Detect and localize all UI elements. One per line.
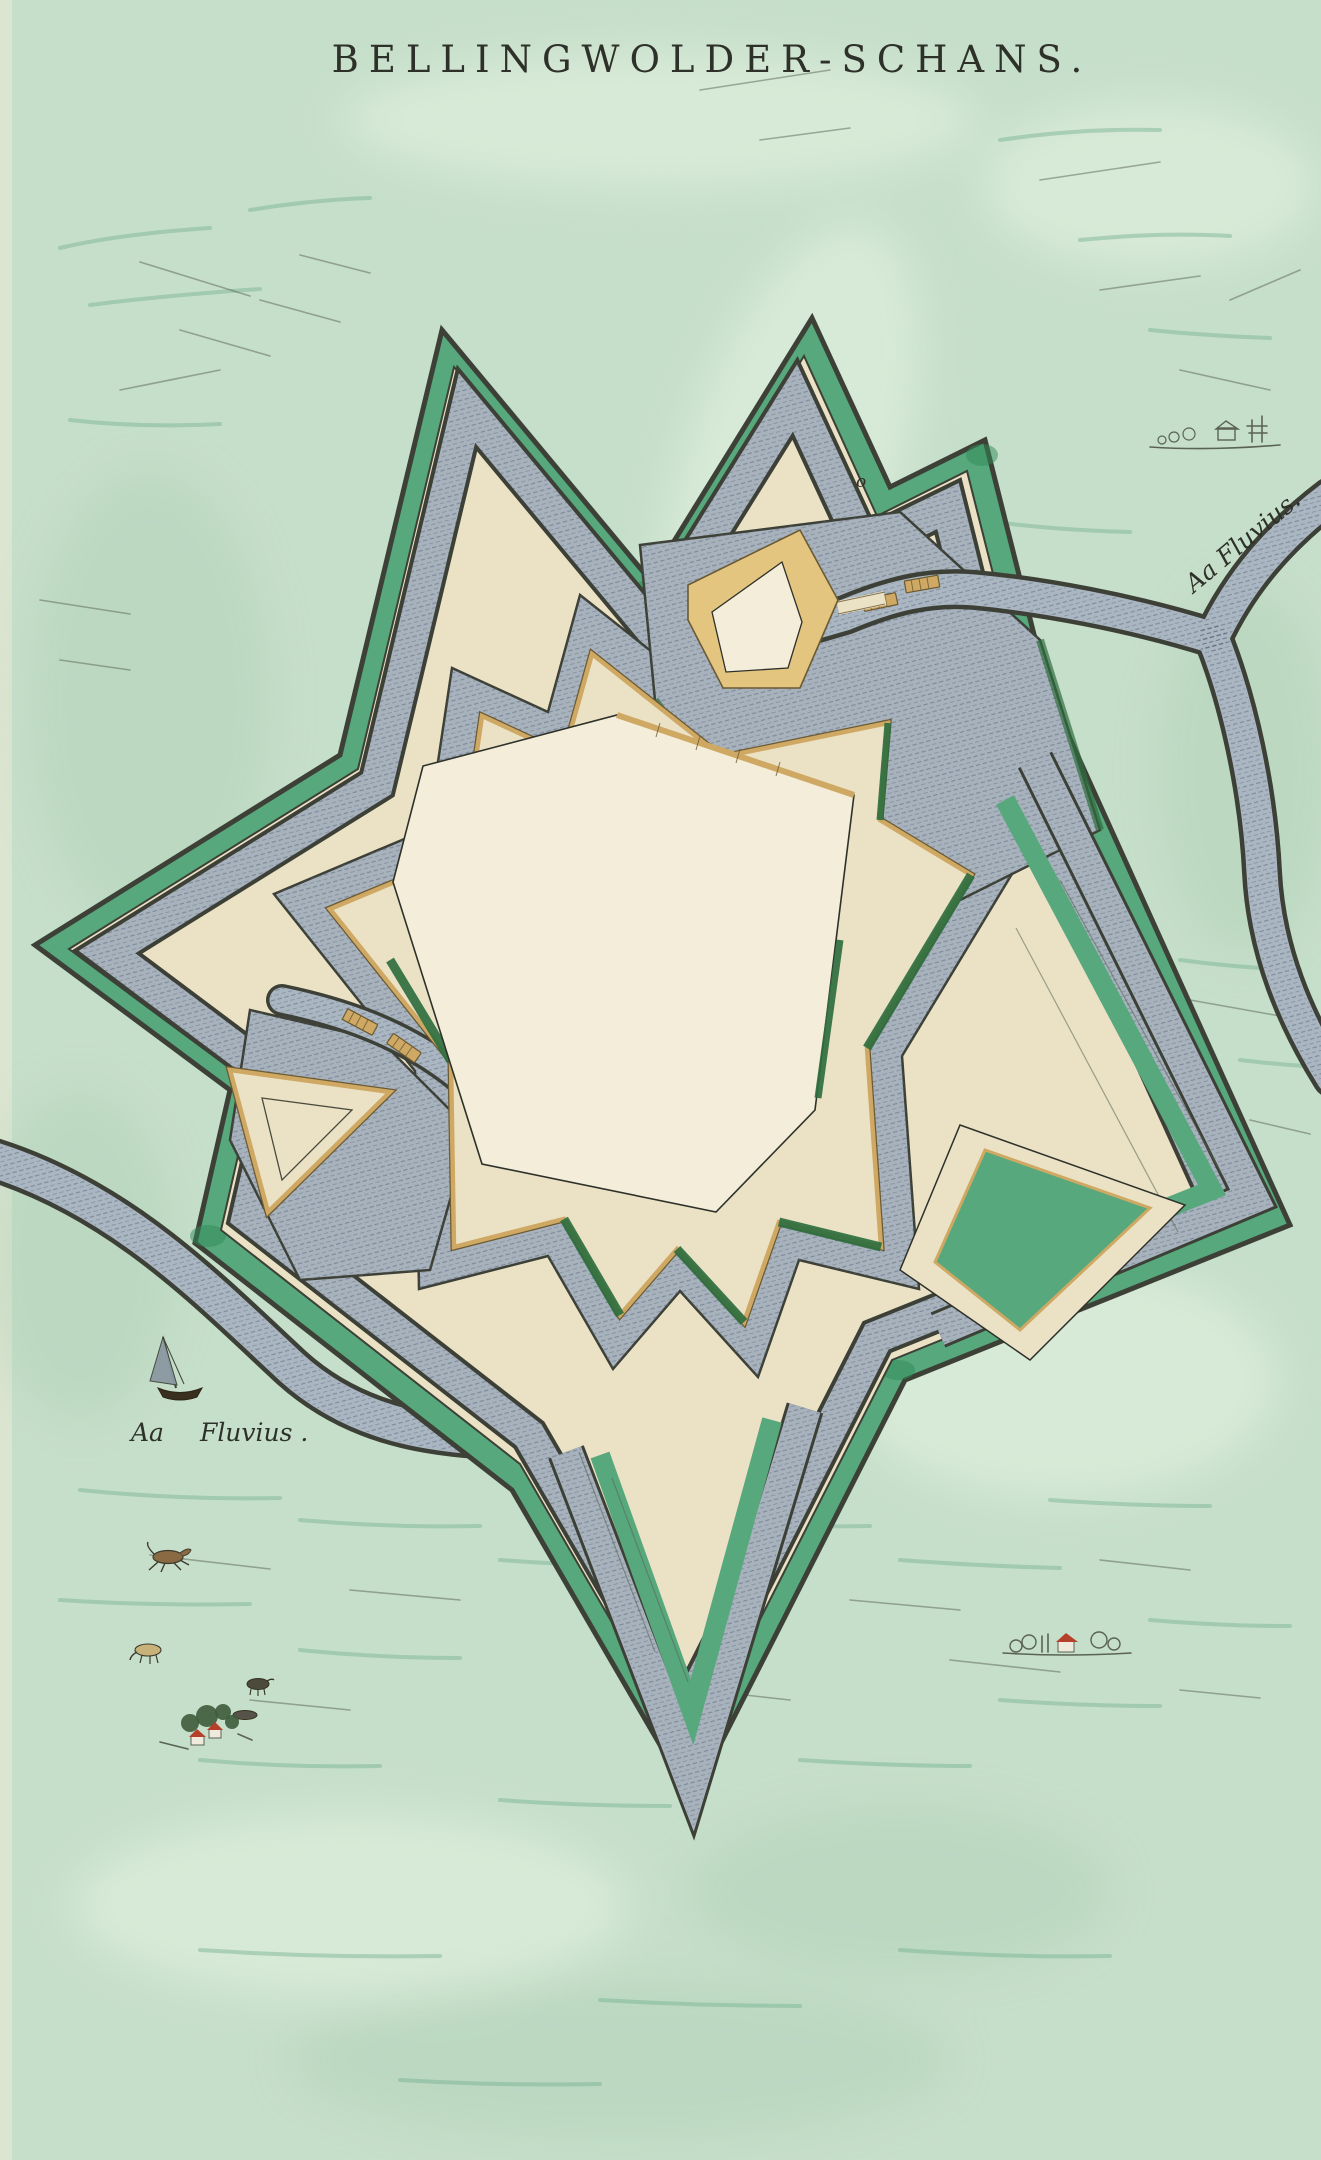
map-page: BELLINGWOLDER-SCHANS. Aa Fluvius. AaFluv… (0, 0, 1321, 2160)
river-label-southwest: AaFluvius . (129, 1418, 308, 1447)
map-canvas: BELLINGWOLDER-SCHANS. Aa Fluvius. AaFluv… (0, 0, 1321, 2160)
paper-edge-left (0, 0, 12, 2160)
map-title: BELLINGWOLDER-SCHANS. (332, 38, 1093, 81)
reference-mark: o (856, 472, 866, 492)
